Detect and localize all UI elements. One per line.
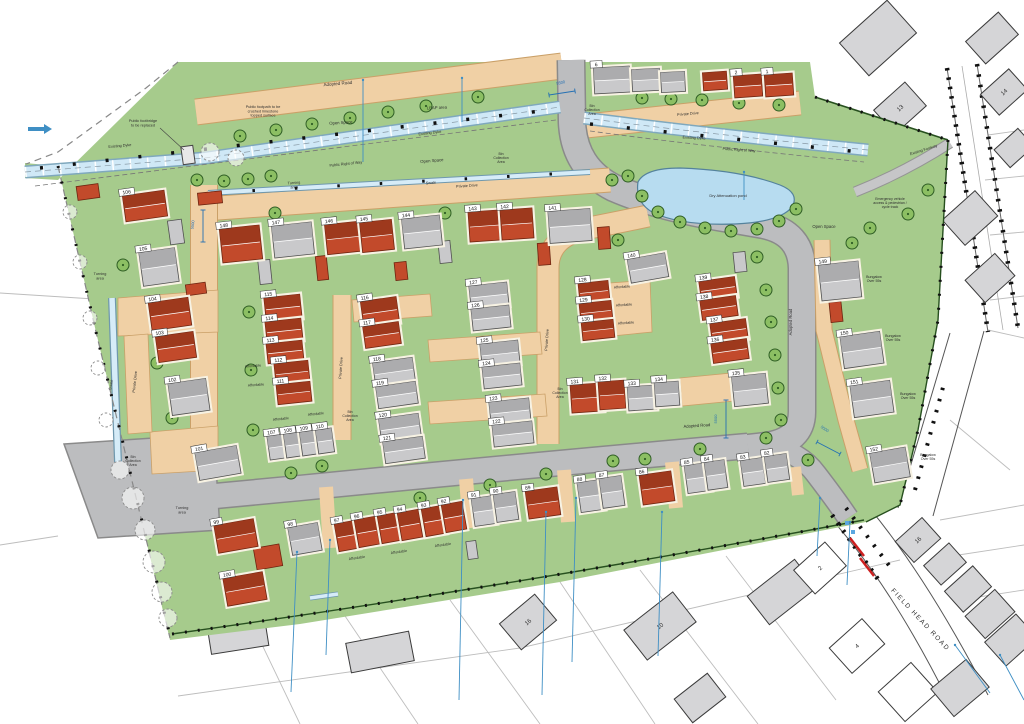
- garage: [76, 184, 100, 201]
- plot-number: 108: [283, 427, 292, 434]
- plot-number: 139: [699, 275, 708, 282]
- svg-text:Open Space: Open Space: [812, 224, 836, 229]
- tree-icon: [612, 234, 624, 246]
- plot-135: 135: [728, 366, 771, 409]
- existing-tree-icon: [91, 361, 105, 375]
- plot-number: 91: [471, 492, 478, 499]
- existing-tree-icon: [83, 311, 97, 325]
- tree-icon: [760, 284, 772, 296]
- tree-icon: [725, 225, 737, 237]
- plot-house: [658, 69, 688, 95]
- existing-tree-icon: [99, 413, 113, 427]
- existing-tree-icon: [63, 205, 77, 219]
- tree-icon: [117, 259, 129, 271]
- plot-number: 145: [360, 216, 369, 223]
- tree-icon: [269, 207, 281, 219]
- tree-icon: [472, 91, 484, 103]
- plot-number: 136: [711, 337, 720, 344]
- map-label: BungalowOver 55s: [885, 334, 901, 342]
- svg-text:Dry Attenuation pond: Dry Attenuation pond: [709, 193, 746, 198]
- plot-house: [629, 66, 663, 95]
- plot-number: 147: [271, 220, 280, 227]
- plot-number: 128: [578, 277, 587, 284]
- garage: [258, 259, 272, 284]
- existing-tree-icon: [73, 255, 87, 269]
- map-label: Public footpath to becrushed limestoneto…: [246, 105, 281, 118]
- tree-icon: [790, 203, 802, 215]
- tree-icon: [636, 190, 648, 202]
- tree-icon: [922, 184, 934, 196]
- plot-number: 142: [500, 204, 509, 211]
- garage: [394, 261, 408, 280]
- map-label: Open Space: [812, 224, 836, 229]
- dimension-value: 5500: [190, 219, 196, 229]
- plot-house: [700, 69, 731, 94]
- plot-number: 143: [468, 206, 477, 213]
- plot-142: 142: [497, 201, 537, 243]
- plot-number: 138: [700, 294, 709, 301]
- tree-icon: [864, 222, 876, 234]
- site-plan-canvas: 131416101624: [0, 0, 1024, 724]
- plot-number: 134: [654, 377, 663, 384]
- garage: [197, 191, 222, 205]
- garage: [733, 251, 747, 272]
- plot-148: 148: [216, 218, 266, 266]
- plot-number: 119: [376, 380, 385, 387]
- garage: [597, 227, 611, 250]
- plot-147: 147: [268, 215, 318, 261]
- garage: [315, 255, 328, 280]
- garage: [829, 301, 843, 322]
- plot-number: 105: [139, 246, 148, 253]
- plot-number: 82: [764, 450, 771, 457]
- plot-90: 90: [489, 484, 521, 525]
- plot-number: 149: [818, 259, 827, 266]
- tree-icon: [607, 455, 619, 467]
- svg-text:Public footbridgeto be replace: Public footbridgeto be replaced: [129, 119, 157, 127]
- tree-icon: [606, 174, 618, 186]
- tree-icon: [751, 251, 763, 263]
- plot-number: 122: [492, 419, 501, 426]
- tree-icon: [760, 432, 772, 444]
- existing-tree-icon: [122, 487, 144, 509]
- plot-number: 144: [402, 213, 411, 220]
- plot-number: 121: [383, 435, 392, 442]
- tree-icon: [751, 223, 763, 235]
- plot-number: 113: [266, 337, 275, 344]
- existing-tree-icon: [228, 150, 244, 166]
- tree-icon: [773, 215, 785, 227]
- tree-icon: [902, 208, 914, 220]
- existing-tree-icon: [201, 143, 219, 161]
- svg-text:BungalowOver 55s: BungalowOver 55s: [900, 392, 916, 400]
- plot-number: 88: [576, 476, 583, 483]
- map-label: Adopted Road: [788, 308, 793, 335]
- tree-icon: [540, 468, 552, 480]
- plot-number: 109: [299, 425, 308, 432]
- plot-number: 89: [525, 485, 532, 492]
- plot-number: 141: [548, 205, 557, 212]
- map-label: BungalowOver 55s: [920, 453, 936, 461]
- svg-text:Public footpath to becrushed l: Public footpath to becrushed limestoneto…: [246, 105, 281, 118]
- plot-number: 112: [274, 357, 283, 364]
- tree-icon: [306, 118, 318, 130]
- plot-number: 102: [168, 377, 177, 384]
- tree-icon: [765, 316, 777, 328]
- map-label: BungalowOver 55s: [866, 275, 882, 283]
- tree-icon: [285, 467, 297, 479]
- plot-number: 126: [471, 303, 480, 310]
- plot-149: 149: [815, 254, 865, 304]
- plot-145: 145: [356, 212, 397, 255]
- plot-number: 130: [581, 316, 590, 323]
- plot-number: 131: [570, 379, 579, 386]
- plot-number: 125: [480, 338, 489, 345]
- plot-number: 111: [276, 378, 284, 385]
- tree-icon: [639, 453, 651, 465]
- tree-icon: [699, 222, 711, 234]
- svg-text:BungalowOver 55s: BungalowOver 55s: [885, 334, 901, 342]
- plot-number: 129: [579, 297, 588, 304]
- existing-tree-icon: [143, 551, 165, 573]
- tree-icon: [234, 130, 246, 142]
- plot-number: 90: [493, 488, 500, 495]
- plot-6: 6: [590, 59, 633, 97]
- tree-icon: [674, 216, 686, 228]
- plot-number: 106: [122, 189, 131, 196]
- plot-number: 116: [360, 295, 369, 302]
- plot-number: 148: [219, 223, 228, 230]
- svg-text:BungalowOver 55s: BungalowOver 55s: [920, 453, 936, 461]
- map-label: Dry Attenuation pond: [709, 193, 746, 198]
- plot-number: 84: [704, 456, 711, 463]
- plot-number: 85: [684, 459, 691, 466]
- plot-number: 117: [363, 320, 372, 327]
- tree-icon: [772, 382, 784, 394]
- tree-icon: [694, 443, 706, 455]
- plot-number: 135: [732, 370, 741, 377]
- plot-132: 132: [595, 373, 629, 413]
- tree-icon: [775, 414, 787, 426]
- tree-icon: [265, 170, 277, 182]
- plot-number: 127: [469, 280, 478, 287]
- plot-number: 83: [740, 454, 747, 461]
- plot-141: 141: [544, 201, 594, 246]
- tree-icon: [243, 306, 255, 318]
- existing-tree-icon: [135, 520, 155, 540]
- plot-number: 118: [373, 356, 382, 363]
- garage: [466, 540, 478, 559]
- plot-134: 134: [651, 374, 683, 409]
- plot-number: 87: [598, 472, 605, 479]
- plot-number: 123: [489, 396, 498, 403]
- tree-icon: [769, 349, 781, 361]
- existing-tree-icon: [152, 582, 172, 602]
- tree-icon: [247, 424, 259, 436]
- plot-number: 103: [155, 330, 164, 337]
- plot-number: 132: [598, 376, 607, 383]
- tree-icon: [846, 237, 858, 249]
- plot-number: 133: [627, 381, 636, 388]
- svg-text:Adopted Road: Adopted Road: [788, 308, 793, 335]
- tree-icon: [270, 124, 282, 136]
- plot-number: 110: [315, 423, 324, 430]
- tree-icon: [652, 206, 664, 218]
- plot-number: 107: [267, 429, 276, 436]
- plot-number: 120: [378, 412, 387, 419]
- tree-icon: [382, 106, 394, 118]
- tree-icon: [696, 94, 708, 106]
- svg-text:Swale: Swale: [426, 181, 437, 186]
- tree-icon: [622, 170, 634, 182]
- tree-icon: [218, 175, 230, 187]
- existing-tree-icon: [111, 461, 129, 479]
- garage: [167, 219, 184, 245]
- svg-text:BungalowOver 55s: BungalowOver 55s: [866, 275, 882, 283]
- plot-number: 124: [482, 361, 491, 368]
- dimension-value: 5500: [713, 414, 718, 424]
- tree-icon: [316, 460, 328, 472]
- tree-icon: [191, 174, 203, 186]
- plot-number: 115: [264, 291, 273, 298]
- site-plan-drawing: 131416101624: [0, 0, 1024, 724]
- tree-icon: [242, 173, 254, 185]
- map-label: Swale: [426, 181, 437, 186]
- plot-number: 150: [840, 330, 849, 337]
- plot-number: 86: [639, 469, 646, 476]
- map-label: Public footbridgeto be replaced: [129, 119, 157, 127]
- garage: [185, 282, 206, 296]
- tree-icon: [802, 454, 814, 466]
- plot-number: 104: [148, 296, 157, 303]
- plot-number: 137: [710, 317, 719, 324]
- plot-number: 146: [325, 218, 334, 225]
- existing-tree-icon: [159, 609, 177, 627]
- tree-icon: [773, 99, 785, 111]
- plot-105: 105: [135, 240, 182, 289]
- plot-number: 151: [850, 379, 859, 386]
- plot-number: 6: [595, 62, 598, 68]
- map-label: BungalowOver 55s: [900, 392, 916, 400]
- plot-number: 114: [265, 315, 274, 322]
